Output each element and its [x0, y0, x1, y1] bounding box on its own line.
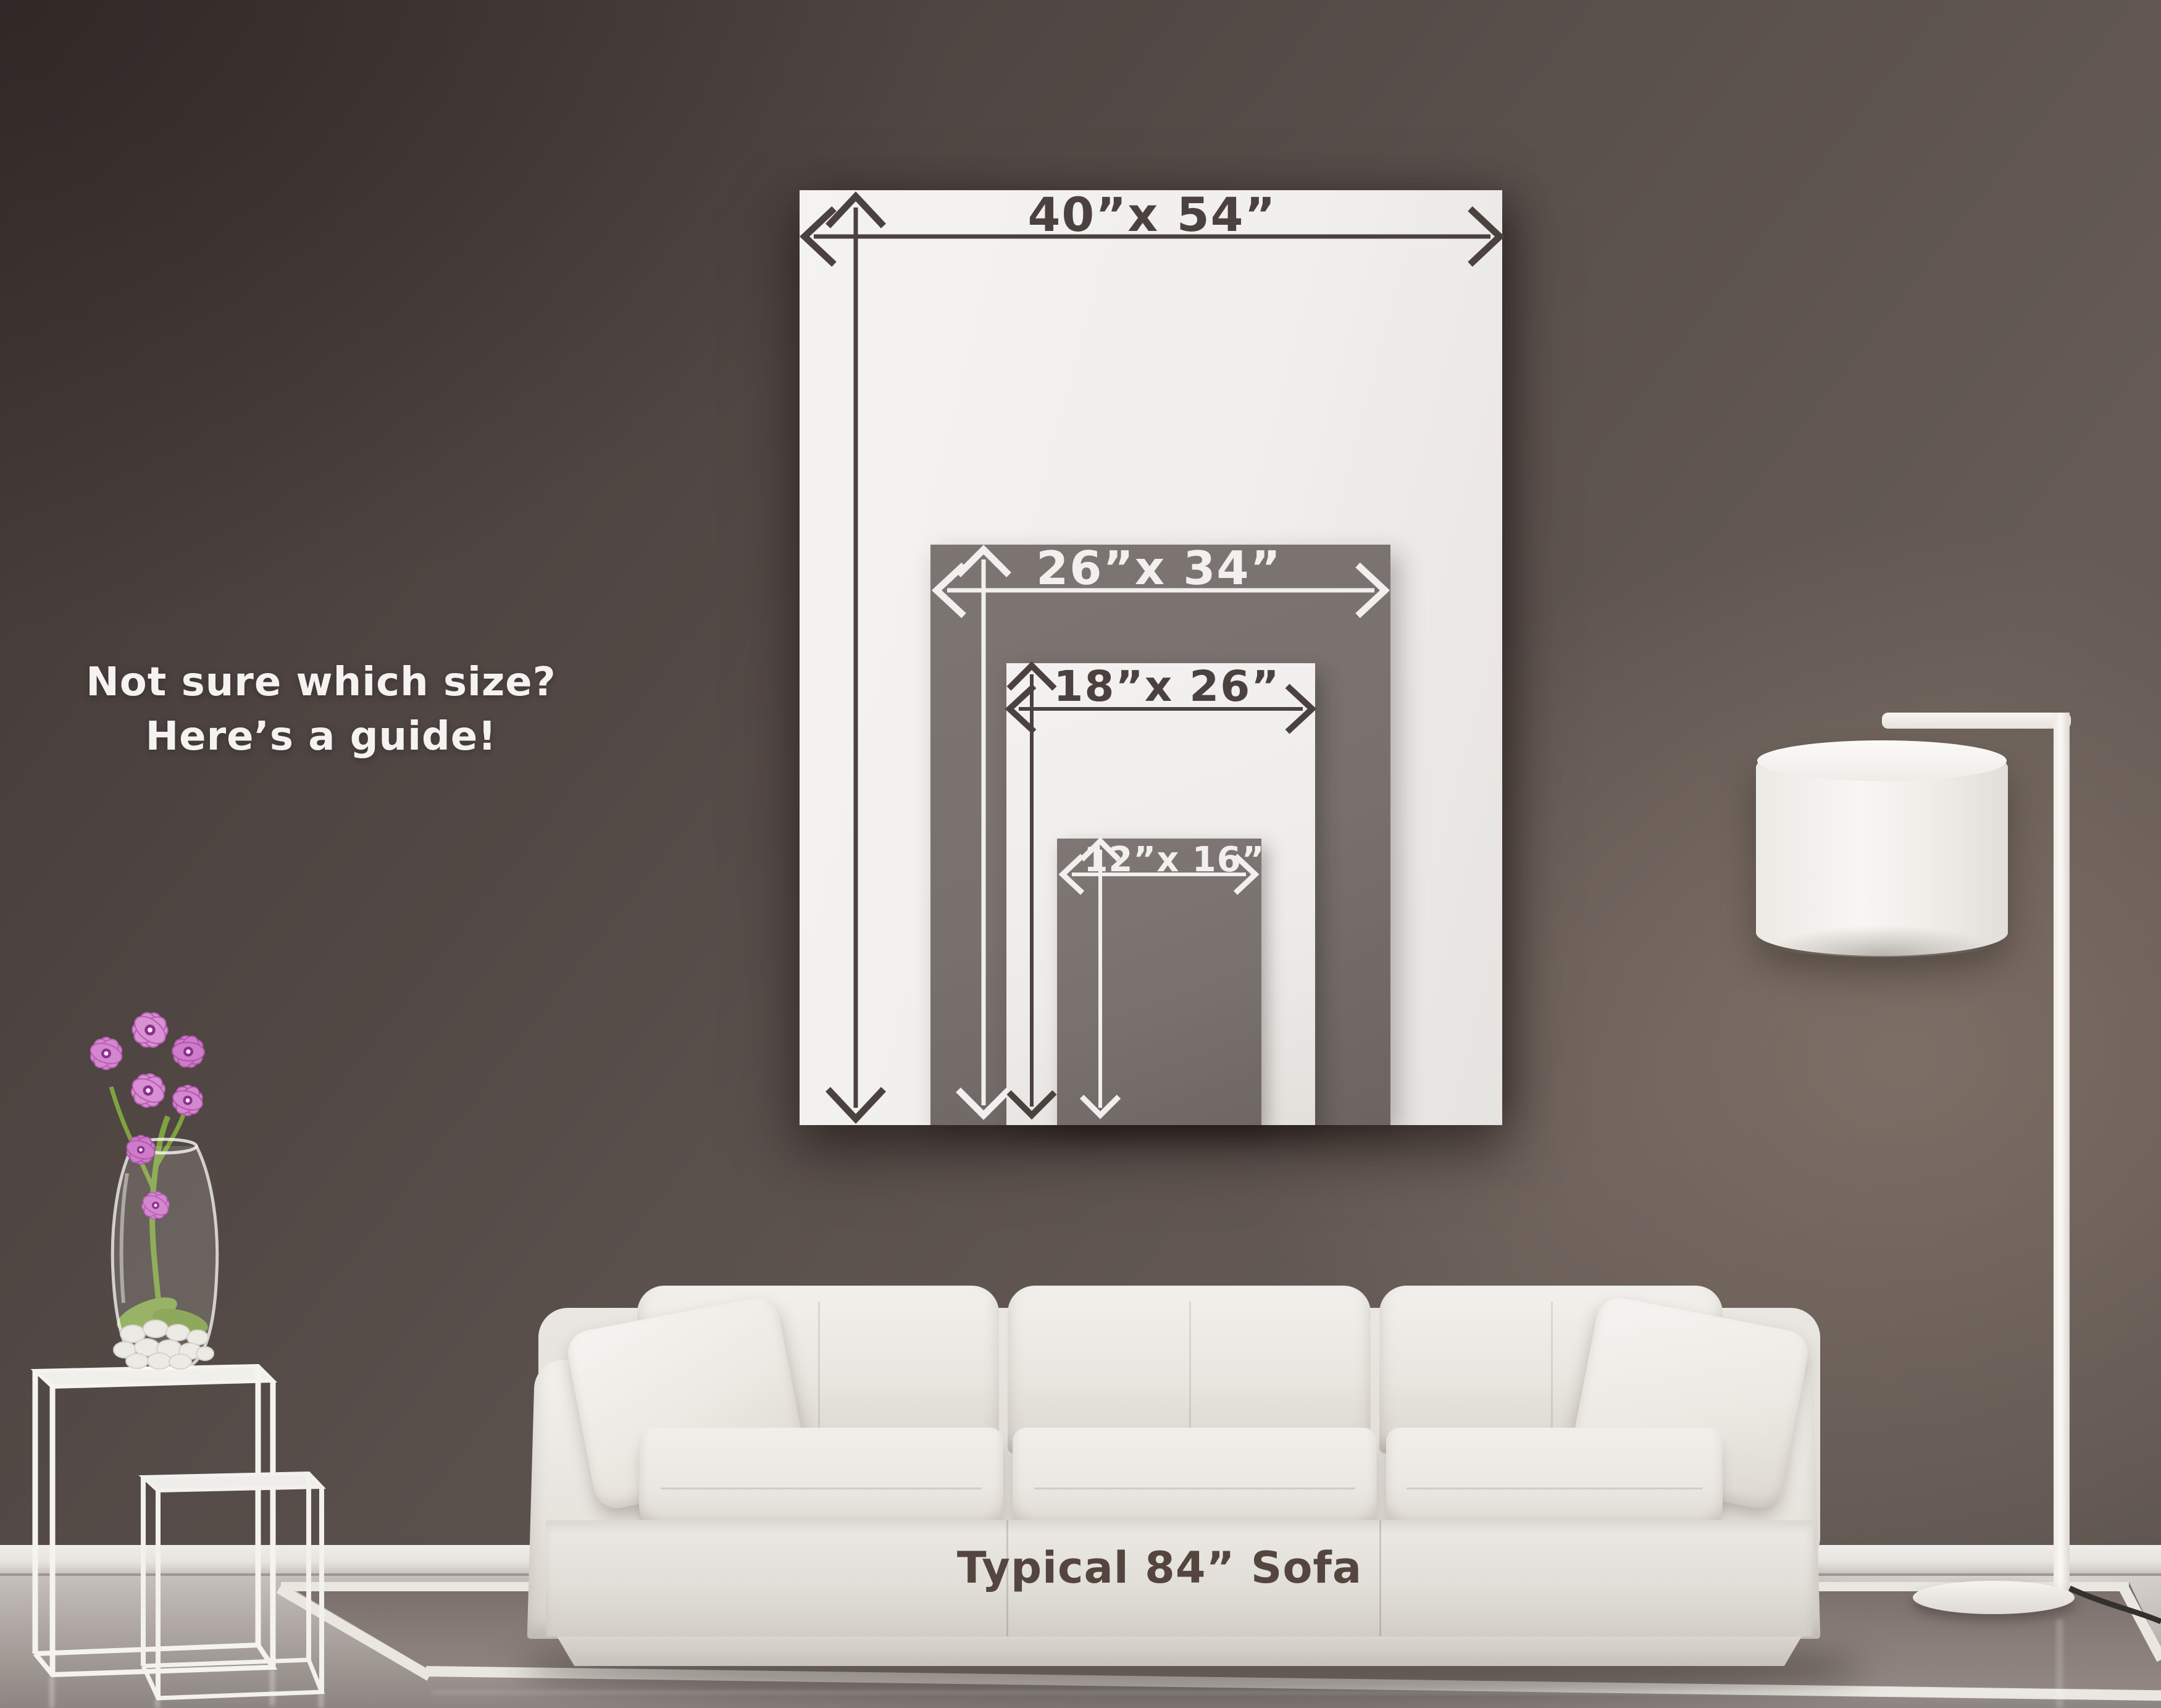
guide-heading-line-2: Here’s a guide!	[146, 714, 497, 760]
orchid-stem	[111, 1087, 211, 1339]
floor-reflection-table-leg	[270, 1668, 275, 1706]
floor-reflection-lamp-pole	[2056, 1619, 2063, 1708]
size-label-18x26: 18”x 26”	[1053, 662, 1280, 711]
size-label-12x16: 12”x 16”	[1084, 840, 1264, 880]
floor-reflection-table-leg	[155, 1698, 160, 1708]
orchid-flowers	[88, 1010, 207, 1221]
floor-reflection-table-leg	[319, 1693, 324, 1708]
glass-vase	[112, 1139, 217, 1368]
sofa-plinth	[557, 1636, 1802, 1666]
lamp-base	[1913, 1581, 2075, 1614]
vase-pebbles	[114, 1320, 214, 1369]
sofa-seat-cushion-right	[1386, 1428, 1723, 1531]
print-12x16	[1057, 839, 1261, 1125]
floor-reflection-table-leg	[49, 1676, 54, 1708]
sofa-seat-cushion-middle	[1013, 1428, 1377, 1531]
sofa-seat-cushion-left	[639, 1428, 1003, 1531]
sofa-caption: Typical 84” Sofa	[957, 1543, 1362, 1593]
lamp-arm	[1882, 713, 2071, 729]
living-room-scene: Not sure which size? Here’s a guide! 40”…	[0, 0, 2161, 1708]
size-label-26x34: 26”x 34”	[1036, 541, 1282, 595]
size-label-40x54: 40”x 54”	[1028, 187, 1277, 242]
guide-heading-line-1: Not sure which size?	[86, 659, 556, 705]
lamp-shade	[1756, 744, 2008, 956]
lamp-pole	[2054, 713, 2070, 1599]
floor-reflection-rug-edge	[432, 1691, 2099, 1694]
